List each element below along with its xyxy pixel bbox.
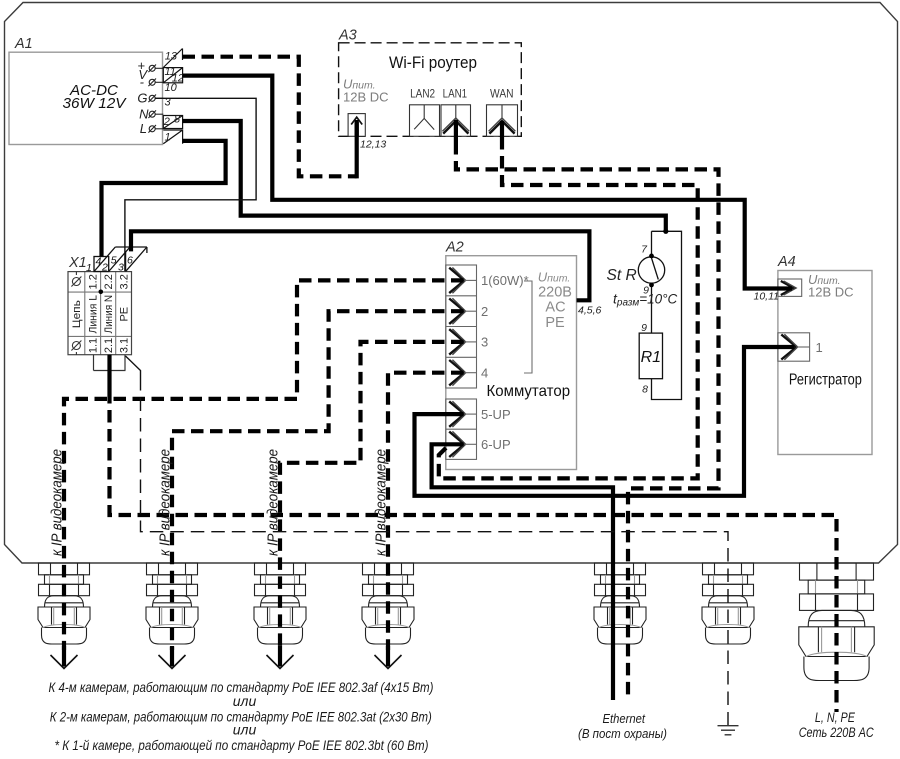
svg-text:Линия L: Линия L [87,295,99,334]
svg-text:L: L [140,121,147,136]
svg-text:13: 13 [165,51,178,63]
svg-text:Uпит.: Uпит. [538,270,571,285]
svg-text:R1: R1 [641,349,661,366]
svg-text:-: - [140,75,145,90]
svg-text:A3: A3 [338,28,357,44]
svg-text:4: 4 [96,256,102,268]
svg-text:или: или [233,693,257,709]
svg-text:6: 6 [127,255,133,267]
svg-text:X1: X1 [68,255,87,271]
svg-text:10,11: 10,11 [754,291,780,303]
svg-text:3.1: 3.1 [118,338,130,353]
svg-text:Коммутатор: Коммутатор [487,383,571,400]
svg-text:12В DC: 12В DC [343,90,389,105]
svg-text:LAN2: LAN2 [410,86,435,100]
svg-text:1.2: 1.2 [87,274,99,289]
svg-text:2: 2 [101,262,108,274]
svg-text:1.1: 1.1 [87,338,99,353]
svg-text:9: 9 [643,285,649,297]
svg-text:1: 1 [165,132,171,144]
svg-text:WAN: WAN [490,86,514,100]
svg-text:1: 1 [86,262,92,274]
svg-text:к IP видеокамере: к IP видеокамере [49,449,66,556]
svg-text:Регистратор: Регистратор [789,372,862,389]
svg-text:6-UP: 6-UP [481,437,511,452]
svg-text:LAN1: LAN1 [443,86,468,100]
svg-text:Wi-Fi роутер: Wi-Fi роутер [389,54,477,72]
svg-text:или: или [233,722,257,738]
svg-text:1(60W)*: 1(60W)* [481,273,529,288]
svg-text:5: 5 [111,255,117,267]
svg-text:2: 2 [163,116,170,128]
svg-text:5-UP: 5-UP [481,407,511,422]
svg-text:3: 3 [481,335,488,350]
svg-text:A4: A4 [777,254,796,270]
svg-text:3: 3 [118,262,124,274]
svg-text:к IP видеокамере: к IP видеокамере [157,449,174,556]
svg-text:Сеть 220В AC: Сеть 220В AC [799,725,874,740]
svg-text:3.2: 3.2 [118,274,130,289]
svg-text:PE: PE [118,307,130,322]
svg-text:к IP видеокамере: к IP видеокамере [373,449,390,556]
svg-text:4,5,6: 4,5,6 [578,305,602,317]
svg-text:* К 1-й камере, работающей по: * К 1-й камере, работающей по стандарту … [55,737,429,753]
svg-text:L, N, PE: L, N, PE [815,710,856,725]
svg-text:36W 12V: 36W 12V [63,95,128,112]
svg-text:10: 10 [165,82,178,94]
svg-text:4: 4 [481,366,488,381]
svg-text:PE: PE [545,315,565,331]
svg-text:A2: A2 [445,240,464,256]
svg-text:2.2: 2.2 [103,274,115,289]
svg-text:2: 2 [481,304,488,319]
svg-text:к IP видеокамере: к IP видеокамере [265,449,282,556]
svg-text:1: 1 [816,340,823,355]
svg-text:Линия N: Линия N [103,295,115,334]
svg-text:AC: AC [545,300,565,316]
svg-text:12В DC: 12В DC [808,285,854,300]
svg-text:(В пост охраны): (В пост охраны) [578,726,667,741]
svg-text:220В: 220В [538,285,572,301]
svg-text:2.1: 2.1 [103,338,115,353]
svg-text:G: G [137,91,147,106]
svg-text:N: N [139,107,149,122]
svg-text:A1: A1 [14,36,33,52]
svg-text:Ethernet: Ethernet [603,711,647,726]
svg-text:St R: St R [607,267,637,284]
svg-text:8: 8 [174,113,181,125]
svg-text:8: 8 [642,384,648,396]
svg-text:Цепь: Цепь [71,300,83,328]
svg-text:9: 9 [641,322,647,334]
svg-text:12,13: 12,13 [360,139,386,151]
